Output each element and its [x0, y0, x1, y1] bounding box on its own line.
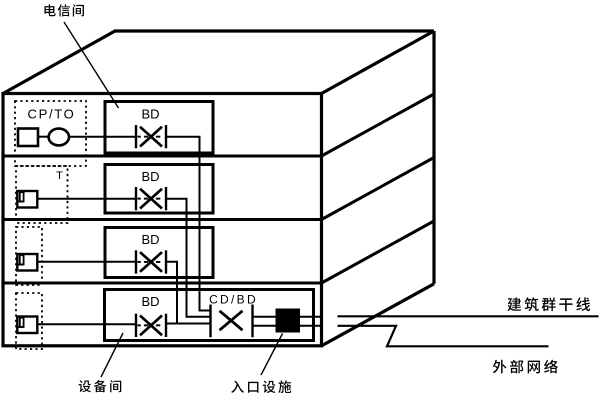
svg-text:BD: BD	[141, 294, 159, 309]
svg-text:CP/TO: CP/TO	[28, 107, 76, 122]
svg-text:T: T	[56, 170, 63, 182]
svg-text:BD: BD	[141, 169, 159, 184]
svg-text:CD/BD: CD/BD	[209, 293, 258, 307]
svg-text:BD: BD	[141, 232, 159, 247]
svg-text:BD: BD	[141, 107, 159, 122]
